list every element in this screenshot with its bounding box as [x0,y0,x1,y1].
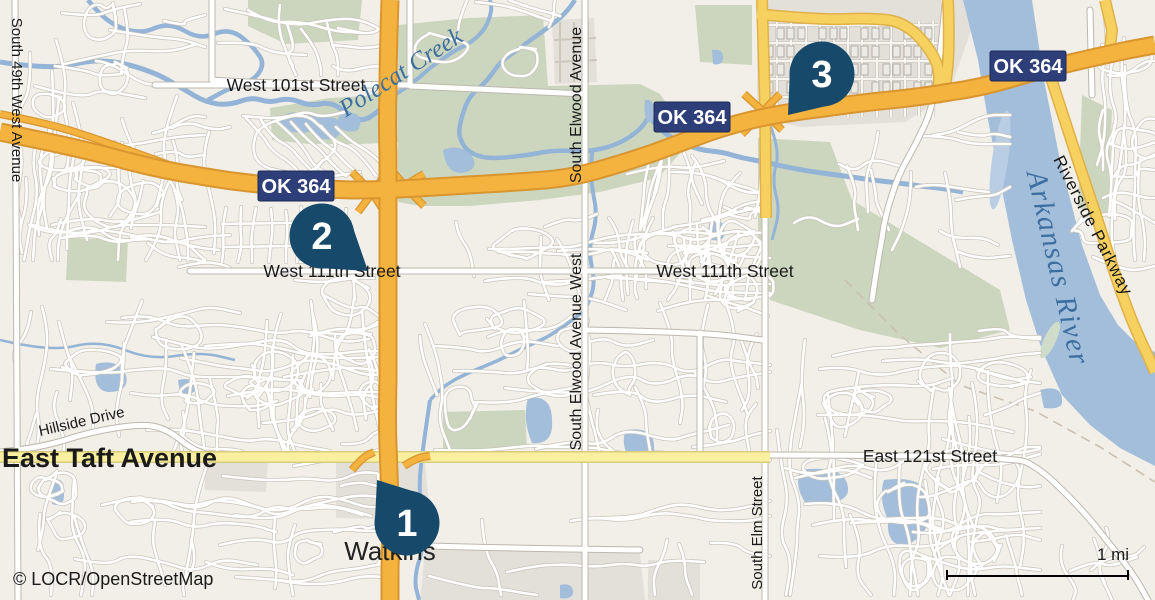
svg-text:OK 364: OK 364 [262,176,332,198]
svg-text:East 121st Street: East 121st Street [863,446,997,466]
svg-text:South Elwood Avenue West: South Elwood Avenue West [568,253,585,450]
svg-text:1: 1 [396,503,417,545]
svg-text:2: 2 [311,216,332,258]
svg-text:East Taft Avenue: East Taft Avenue [2,443,217,473]
svg-text:1 mi: 1 mi [1097,545,1129,564]
svg-text:South Elwood Avenue: South Elwood Avenue [568,27,585,183]
svg-text:South 49th West Avenue: South 49th West Avenue [8,18,25,183]
svg-text:OK 364: OK 364 [994,56,1064,78]
svg-text:OK 364: OK 364 [658,107,728,129]
svg-text:3: 3 [811,54,832,96]
svg-text:West 111th Street: West 111th Street [656,261,793,281]
svg-text:South Elm Street: South Elm Street [749,475,766,589]
svg-text:© LOCR/OpenStreetMap: © LOCR/OpenStreetMap [13,569,213,589]
